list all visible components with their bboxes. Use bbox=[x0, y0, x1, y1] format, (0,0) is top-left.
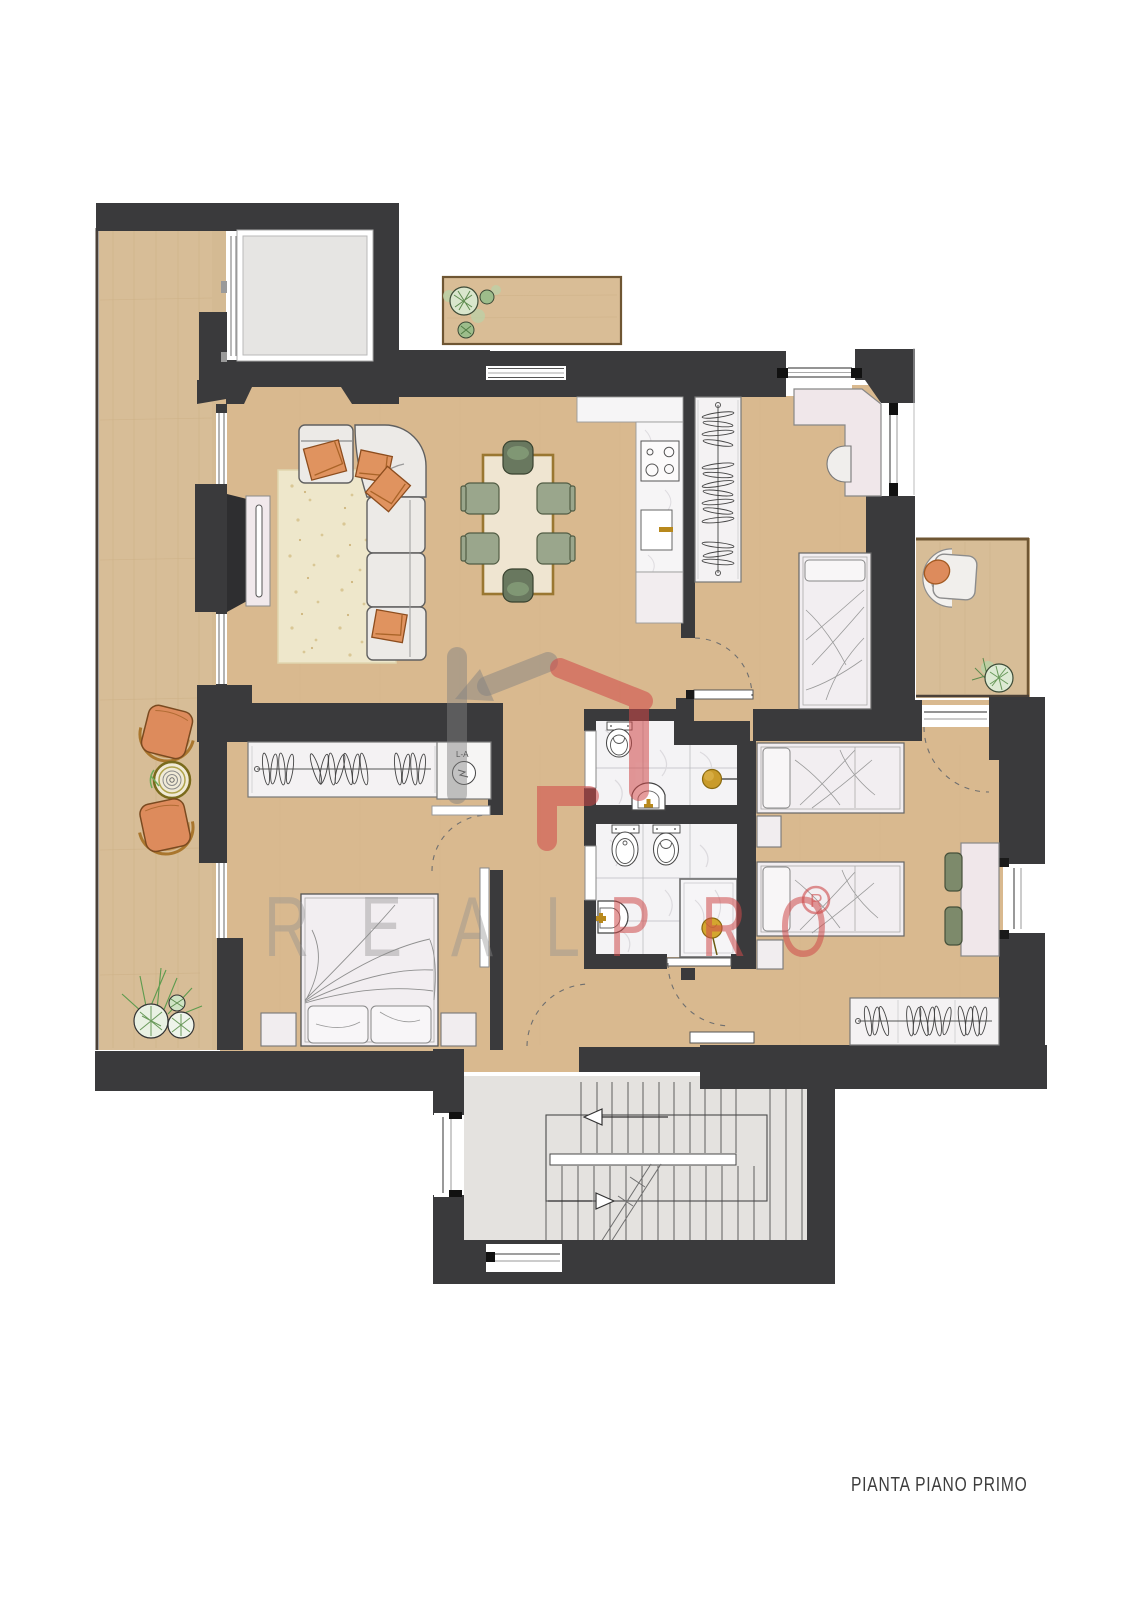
svg-text:P: P bbox=[609, 879, 651, 974]
svg-text:A: A bbox=[451, 879, 493, 974]
svg-text:R: R bbox=[810, 891, 823, 911]
svg-text:E: E bbox=[360, 879, 402, 974]
svg-text:R: R bbox=[264, 879, 309, 974]
svg-text:PIANTA PIANO PRIMO: PIANTA PIANO PRIMO bbox=[851, 1473, 1028, 1495]
svg-text:L: L bbox=[545, 879, 580, 974]
svg-text:R: R bbox=[701, 879, 746, 974]
